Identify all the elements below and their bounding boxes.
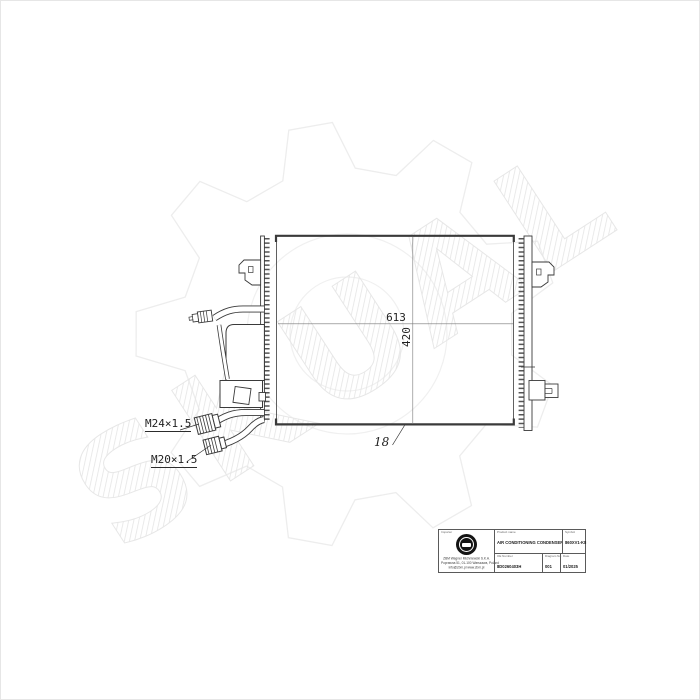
oe-number-label: OE Number: [497, 555, 513, 558]
m24-thread-text: M24×1.5: [145, 417, 191, 432]
date-label: Date: [563, 555, 569, 558]
condenser-technical-drawing: SKUAL: [1, 1, 700, 700]
bracket-tank-tab: [259, 393, 266, 402]
symbol-cell: Symbol 860XV1-K8: [562, 530, 585, 553]
symbol-label: Symbol: [565, 531, 575, 534]
m20-thread-label: M20×1.5: [151, 453, 197, 466]
thickness-leader-line: [393, 426, 405, 446]
diagram-no-value: 001: [545, 564, 552, 569]
receiver-drier: [226, 325, 264, 381]
title-block: Importer ZBM Wagner Michniewski S.K.A. P…: [438, 529, 586, 573]
oe-number-value: 8D0260403H: [497, 564, 521, 569]
watermark-text: SKUAL: [43, 105, 651, 583]
diagram-no-cell: Diagram No. 001: [542, 553, 560, 572]
date-value: 01/2025: [563, 564, 578, 569]
product-name-cell: Product name AIR CONDITIONING CONDENSER: [494, 530, 562, 553]
oe-number-cell: OE Number 8D0260403H: [494, 553, 542, 572]
importer-label: Importer: [441, 531, 452, 534]
watermark-group: SKUAL: [43, 105, 651, 583]
dimension-height-label: 420: [400, 322, 414, 352]
product-name-label: Product name: [497, 531, 516, 534]
service-valve-port: [188, 310, 212, 324]
right-outlet-fitting: [529, 381, 558, 401]
product-name-value: AIR CONDITIONING CONDENSER: [497, 540, 563, 545]
right-header-tank: [524, 236, 532, 431]
dimension-thickness-label: 18: [374, 435, 389, 449]
company-line: info@zbm.pl www.zbm.pl: [441, 566, 492, 570]
symbol-value: 860XV1-K8: [565, 540, 586, 545]
date-cell: Date 01/2025: [560, 553, 585, 572]
importer-cell: Importer ZBM Wagner Michniewski S.K.A. P…: [439, 530, 494, 572]
brand-logo-glyph: [462, 543, 471, 547]
bracket-plate-hole: [233, 386, 251, 404]
m24-thread-label: M24×1.5: [145, 417, 191, 430]
brand-logo-icon: [456, 534, 477, 555]
company-address: ZBM Wagner Michniewski S.K.A. Poprawna 5…: [441, 557, 492, 570]
m20-thread-text: M20×1.5: [151, 453, 197, 468]
drawing-sheet: SKUAL: [0, 0, 700, 700]
